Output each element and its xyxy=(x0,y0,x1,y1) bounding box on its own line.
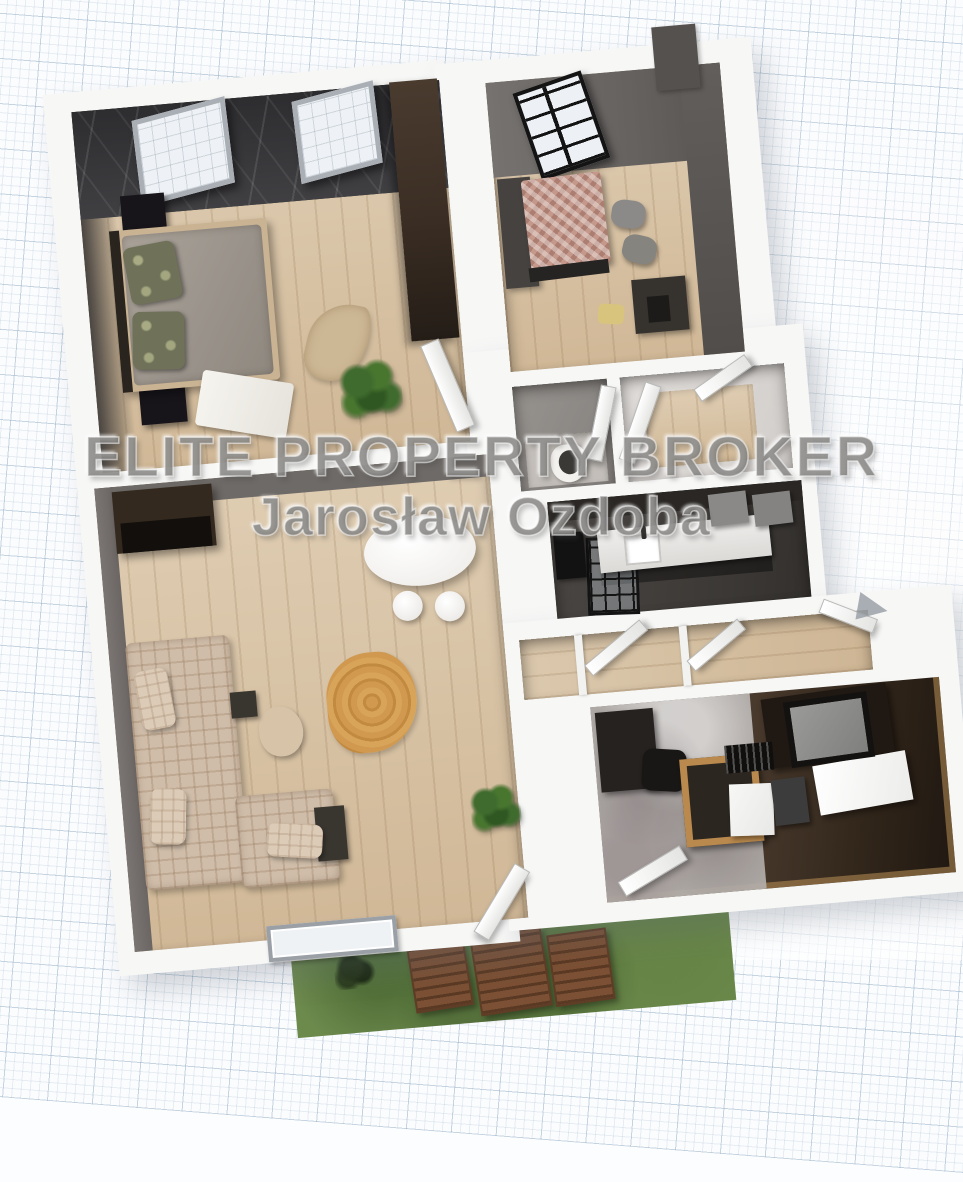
living-room-plant xyxy=(469,782,523,836)
desk-appliance-grid xyxy=(724,742,774,774)
white-cabinet-small xyxy=(729,783,775,837)
watermark-line-1: ELITE PROPERTY BROKER xyxy=(0,424,963,490)
garden-chair-right xyxy=(546,927,615,1007)
bedroom-second-wall-top-corner xyxy=(651,24,700,92)
bed-pillow-top xyxy=(122,239,184,306)
coffee-table-small xyxy=(230,690,258,718)
bed-checkered xyxy=(520,171,611,272)
desk-knee-hole xyxy=(647,295,671,323)
bed-pillow-bottom xyxy=(132,311,185,370)
desk-chair-beige xyxy=(598,303,625,324)
sofa-cushion-chaise xyxy=(266,822,324,859)
floor-pouffe-top xyxy=(610,198,647,230)
monstera-plant-bedroom xyxy=(337,357,404,424)
garden-chair-left xyxy=(406,939,474,1013)
sofa-cushion-middle xyxy=(150,788,187,845)
floor-plan-screenshot: { "watermark": { "line1": "ELITE PROPERT… xyxy=(0,0,963,960)
tv-screen xyxy=(783,691,875,768)
watermark-line-2: Jarosław Ozdoba xyxy=(0,486,963,548)
direction-arrow xyxy=(855,592,889,625)
floor-plan-3d xyxy=(0,0,963,1140)
dark-unit xyxy=(771,776,810,826)
